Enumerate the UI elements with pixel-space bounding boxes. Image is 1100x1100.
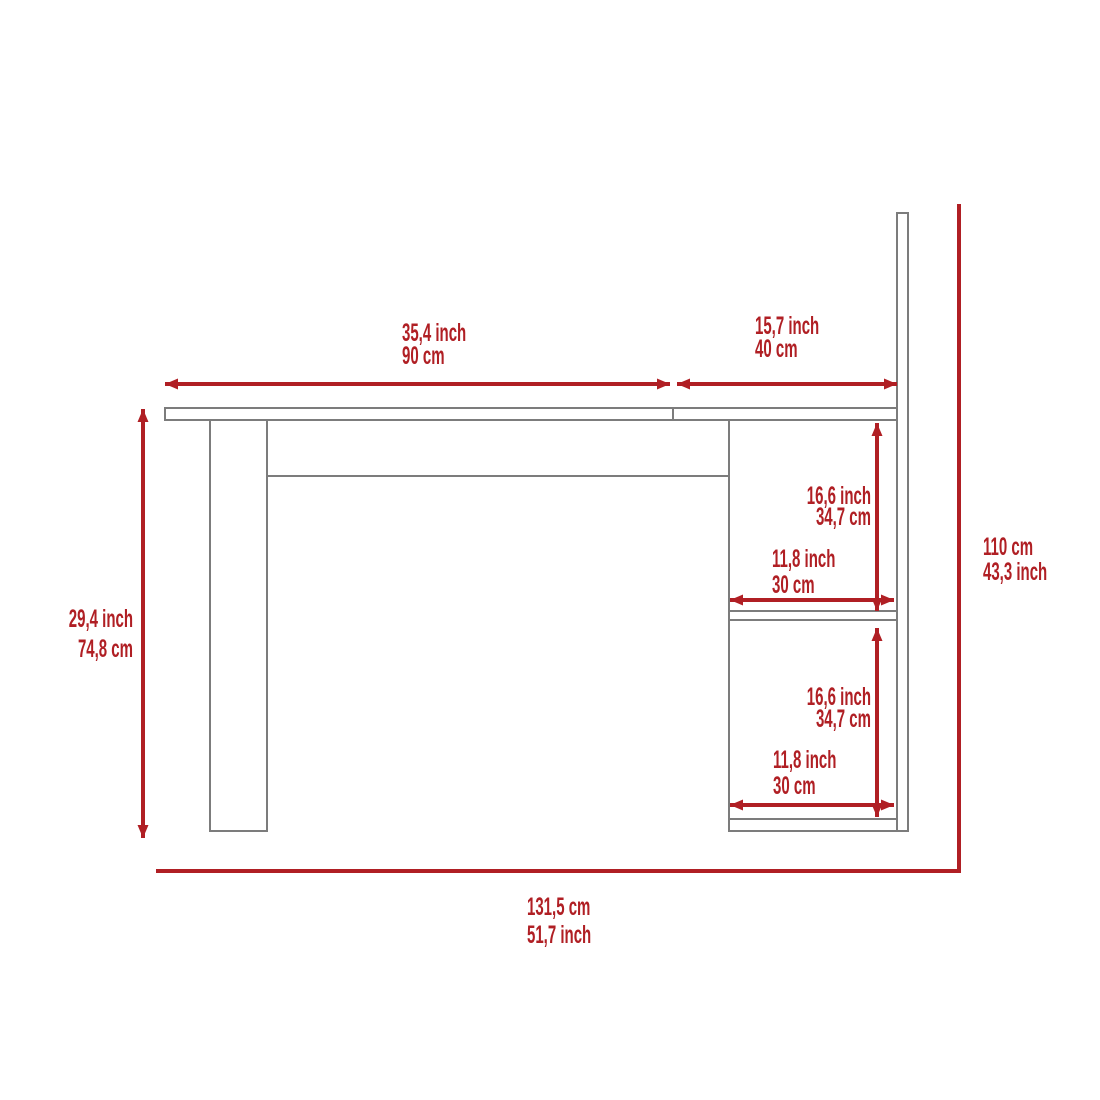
label-overall-height: 110 cm 43,3 inch	[983, 535, 1047, 585]
label-upper-shelf-width-cm: 30 cm	[772, 572, 835, 598]
label-overall-height-inch: 43,3 inch	[983, 560, 1047, 585]
middle-shelf-board	[729, 611, 897, 620]
label-upper-shelf-width: 11,8 inch 30 cm	[772, 546, 835, 598]
label-lower-shelf-width: 11,8 inch 30 cm	[773, 747, 836, 799]
left-leg-panel	[210, 420, 267, 831]
label-desktop-side-width: 15,7 inch 40 cm	[755, 315, 819, 361]
label-desktop-side-width-cm: 40 cm	[755, 338, 819, 361]
label-overall-width: 131,5 cm 51,7 inch	[527, 893, 591, 949]
label-overall-height-cm: 110 cm	[983, 535, 1047, 560]
dim-bracket-overall	[156, 204, 959, 871]
desk-dimension-diagram: 35,4 inch 90 cm 15,7 inch 40 cm 29,4 inc…	[0, 0, 1100, 1100]
label-overall-width-inch: 51,7 inch	[527, 921, 591, 949]
label-desktop-main-width: 35,4 inch 90 cm	[402, 322, 466, 368]
label-desk-height-inch: 29,4 inch	[69, 604, 133, 634]
label-upper-shelf-height-cm: 34,7 cm	[807, 507, 871, 528]
label-lower-shelf-width-inch: 11,8 inch	[773, 747, 836, 773]
label-desk-height: 29,4 inch 74,8 cm	[69, 604, 133, 664]
label-desktop-main-width-cm: 90 cm	[402, 345, 466, 368]
label-lower-shelf-height: 16,6 inch 34,7 cm	[807, 686, 871, 730]
label-desk-height-cm: 74,8 cm	[69, 634, 133, 664]
desktop-board	[165, 408, 897, 420]
hutch-back-panel	[897, 213, 908, 831]
dimension-graphics	[143, 204, 959, 871]
label-lower-shelf-height-cm: 34,7 cm	[807, 708, 871, 730]
label-upper-shelf-height: 16,6 inch 34,7 cm	[807, 486, 871, 528]
furniture-outline	[165, 213, 908, 831]
label-upper-shelf-width-inch: 11,8 inch	[772, 546, 835, 572]
label-overall-width-cm: 131,5 cm	[527, 893, 591, 921]
bottom-shelf-board	[729, 819, 897, 831]
label-lower-shelf-width-cm: 30 cm	[773, 773, 836, 799]
